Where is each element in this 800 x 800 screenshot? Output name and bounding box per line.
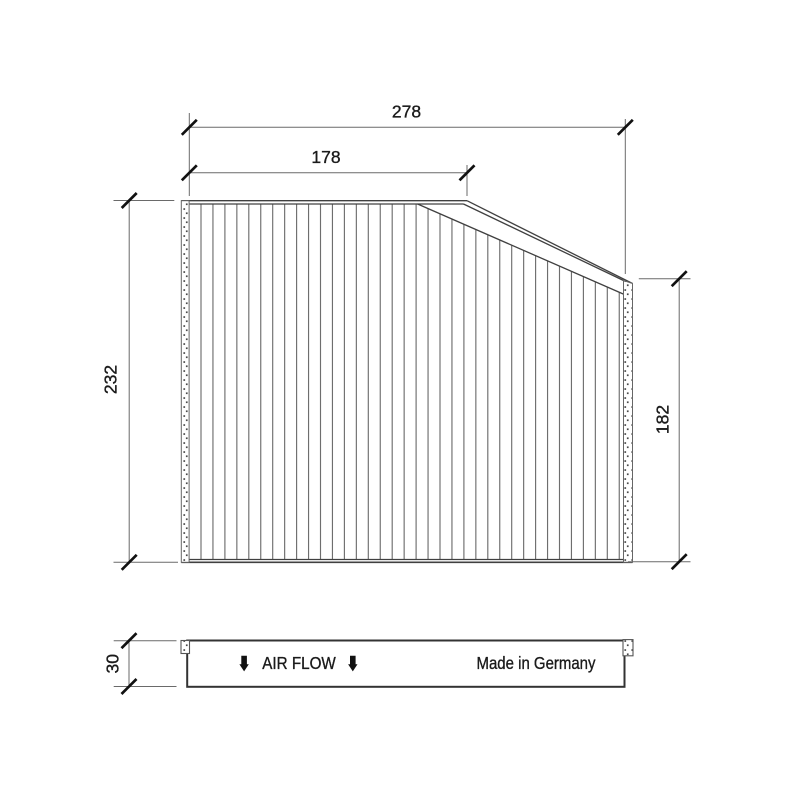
svg-text:232: 232 (101, 365, 121, 394)
svg-text:AIR FLOW: AIR FLOW (262, 653, 336, 673)
svg-text:178: 178 (311, 147, 340, 167)
svg-text:182: 182 (653, 405, 673, 434)
svg-text:278: 278 (392, 102, 421, 122)
svg-text:30: 30 (103, 654, 123, 674)
svg-text:Made in Germany: Made in Germany (477, 653, 596, 673)
